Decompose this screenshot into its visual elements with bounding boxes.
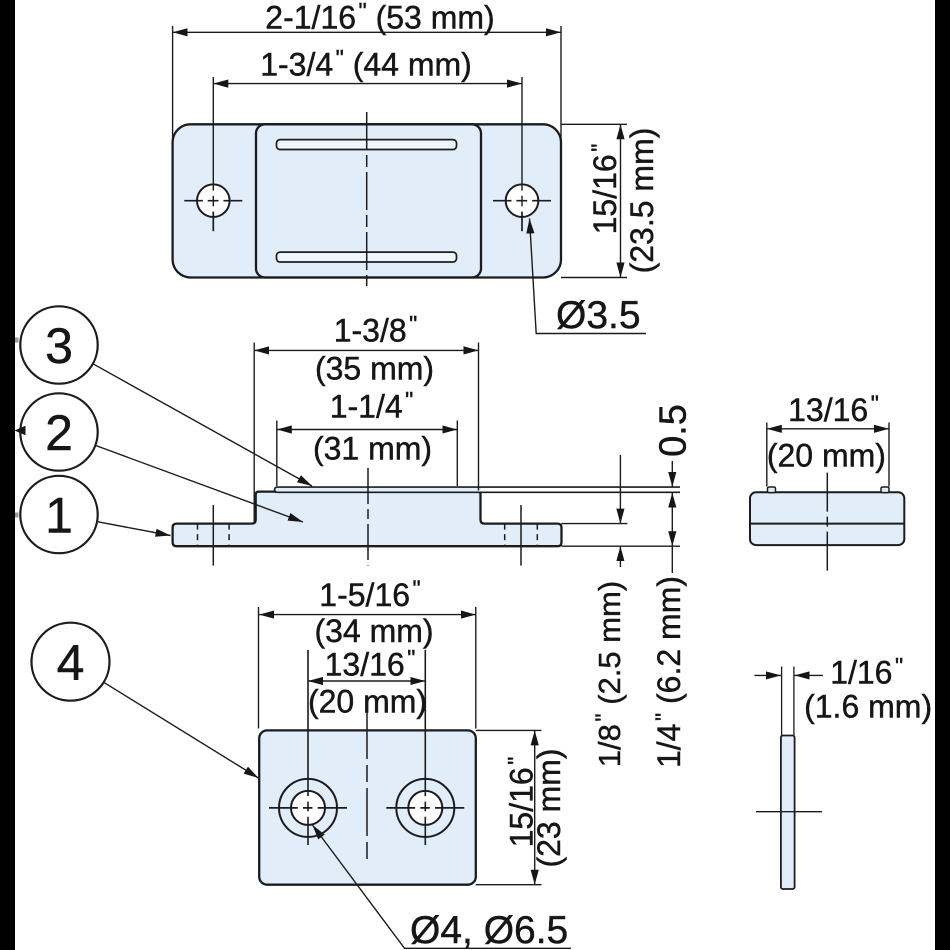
svg-text:2-1/16" (53 mm): 2-1/16" (53 mm) bbox=[265, 0, 494, 36]
svg-text:1: 1 bbox=[45, 488, 73, 544]
svg-text:1-1/4": 1-1/4" bbox=[330, 387, 414, 425]
svg-text:(20 mm): (20 mm) bbox=[308, 684, 427, 720]
svg-text:1-3/8": 1-3/8" bbox=[334, 311, 418, 349]
svg-text:1-5/16": 1-5/16" bbox=[319, 576, 420, 614]
svg-text:(20 mm): (20 mm) bbox=[767, 437, 886, 473]
svg-text:(31 mm): (31 mm) bbox=[313, 431, 432, 467]
svg-text:3: 3 bbox=[45, 318, 73, 374]
svg-text:4: 4 bbox=[57, 635, 85, 691]
svg-text:13/16": 13/16" bbox=[325, 645, 416, 683]
svg-text:(1.6 mm): (1.6 mm) bbox=[804, 688, 932, 724]
svg-text:(23 mm): (23 mm) bbox=[531, 748, 567, 867]
svg-text:1/16": 1/16" bbox=[830, 653, 903, 691]
svg-text:(35 mm): (35 mm) bbox=[315, 351, 434, 387]
svg-text:0.5: 0.5 bbox=[653, 404, 695, 457]
svg-text:1/8" (2.5 mm): 1/8" (2.5 mm) bbox=[591, 581, 628, 767]
svg-text:1/4" (6.2 mm): 1/4" (6.2 mm) bbox=[651, 576, 688, 768]
svg-text:(34 mm): (34 mm) bbox=[314, 613, 433, 649]
svg-text:Ø3.5: Ø3.5 bbox=[556, 294, 641, 337]
svg-text:(23.5 mm): (23.5 mm) bbox=[624, 128, 660, 274]
svg-text:1-3/4" (44 mm): 1-3/4" (44 mm) bbox=[260, 45, 472, 83]
svg-text:13/16": 13/16" bbox=[788, 391, 879, 429]
svg-text:15/16": 15/16" bbox=[587, 144, 624, 235]
svg-text:Ø4, Ø6.5: Ø4, Ø6.5 bbox=[410, 909, 568, 950]
svg-text:2: 2 bbox=[45, 405, 73, 461]
